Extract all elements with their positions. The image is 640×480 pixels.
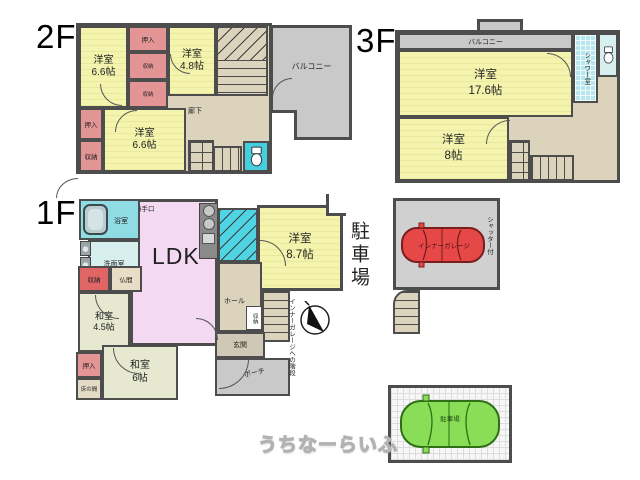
toilet-icon [249, 146, 264, 167]
stairs-down-2f [212, 146, 242, 172]
room-label: 洋室8帖 [442, 133, 465, 164]
room-western-2f-c: 洋室6.6帖 [103, 108, 186, 172]
door-arc [56, 178, 78, 198]
shower-room-label: シャワー室 [582, 52, 589, 85]
shutter-note: シャッター付 [485, 216, 492, 272]
hallway-2f-label: 廊下 [188, 106, 202, 116]
bathtub-icon [83, 204, 108, 235]
ldk-label: LDK [152, 243, 200, 270]
stairs-3f [530, 155, 574, 181]
bathroom-label: 浴室 [114, 216, 128, 226]
room-label: 洋室17.6帖 [469, 68, 503, 99]
stove-burner-icon [203, 205, 215, 217]
floorplan-canvas: 2F バルコニー 洋室6.6帖 押入 収納 収納 洋室4.8帖 押入 収納 洋室… [0, 0, 640, 480]
floor-label-3f: 3F [356, 22, 397, 60]
stairs-up-2f [216, 26, 268, 96]
parking-lot-label: 駐車場 [425, 412, 475, 424]
north-arrow-icon [297, 301, 333, 337]
closet-oshiire-1f: 押入 [76, 352, 102, 378]
closet-shuno-1f: 収納 [78, 266, 110, 292]
closet-shuno-small: 収納 [246, 306, 262, 330]
stairs-landing-3f [509, 140, 530, 181]
watermark-logo: うちなーらいふ [258, 430, 398, 457]
tokonoma: 床の間 [76, 378, 102, 400]
balcony-2f-step [272, 110, 297, 140]
kitchen-counter-icon [199, 203, 218, 259]
washer-icon [80, 241, 91, 256]
stairs-treads [218, 60, 266, 94]
balcony-3f: バルコニー [398, 33, 573, 50]
genkan: 玄関 [215, 332, 265, 358]
stairs-1f [218, 208, 258, 262]
bathroom: 浴室 [79, 199, 140, 240]
garage-stairs-note: インナーガレージへの階段 [287, 298, 294, 384]
parking-area-label: 駐車場 [349, 221, 368, 290]
toilet-icon [602, 46, 615, 64]
closet-oshiire-2f-left: 押入 [79, 108, 103, 140]
toilet-room-3f [598, 33, 618, 77]
balcony-2f-label: バルコニー [274, 60, 349, 72]
inner-garage-label: インナーガレージ [405, 239, 483, 251]
stairs-landing-2f [188, 140, 214, 172]
butsuma-room: 仏間 [110, 266, 142, 292]
floor-label-1f: 1F [36, 194, 77, 232]
stairs-to-garage [262, 290, 290, 342]
sink-icon [202, 233, 215, 244]
stove-burner-icon [203, 218, 215, 230]
toilet-room-2f [243, 141, 269, 172]
green-car-icon [398, 393, 502, 455]
shower-room-3f: シャワー室 [573, 33, 598, 103]
floor-label-2f: 2F [36, 18, 77, 56]
hall-label: ホール [224, 296, 245, 306]
room-label: 洋室8.7帖 [286, 232, 314, 263]
closet-shuno-2f-a: 収納 [128, 52, 168, 80]
closet-shuno-2f-b: 収納 [128, 80, 168, 108]
wall-notch [326, 194, 346, 216]
closet-oshiire-2f-top: 押入 [128, 26, 168, 52]
garage-outside-stairs [393, 290, 420, 334]
room-label: 洋室6.6帖 [92, 55, 116, 80]
closet-shuno-2f-left: 収納 [79, 140, 103, 172]
stairs-winder [218, 28, 266, 60]
